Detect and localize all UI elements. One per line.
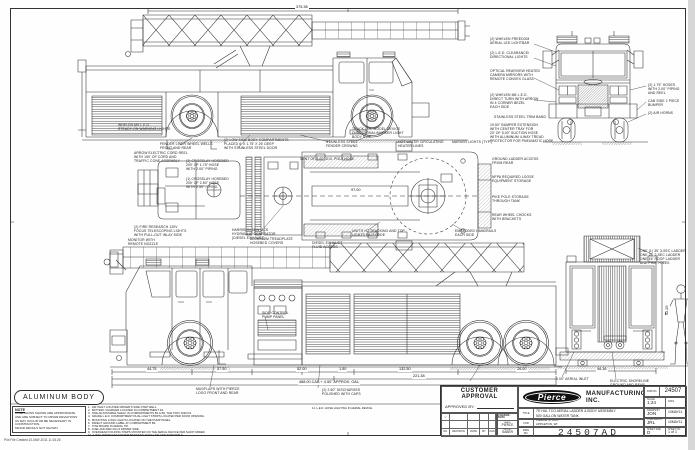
plot-file-stamp: Plot File Created 10-MAY-2011 11:15:26 bbox=[4, 438, 61, 442]
note-text: DIMENSIONS SHOWN ARE APPROXIMATE AND ARE… bbox=[15, 412, 83, 431]
for-row: FOR PIERCE STOCK APPLETON, WI bbox=[518, 419, 644, 427]
title-row: TITLE 75' HAL TCO AERIAL LADDER & BODY A… bbox=[518, 408, 644, 419]
checked-row: CHECKED BYJRL 10MAY11 bbox=[644, 418, 687, 427]
sheet-number: 1 of 1 bbox=[668, 431, 684, 435]
drawing-number: 24507AD bbox=[534, 428, 643, 436]
title-block: CUSTOMER APPROVAL APPROVED BY: DATE: ▽ N… bbox=[440, 385, 686, 436]
view-right-side bbox=[104, 243, 568, 388]
view-rear bbox=[554, 236, 695, 379]
logo-block: Pierce MANUFACTURING INC. bbox=[518, 386, 644, 408]
pierce-logo: Pierce bbox=[523, 390, 581, 404]
dwg-row: DWG NO. 24507AD bbox=[518, 427, 644, 437]
drawing-title-line2: 500 GALLON WATER TANK bbox=[536, 414, 641, 418]
customer-approval-heading: CUSTOMER APPROVAL bbox=[442, 388, 517, 400]
revision-table: ▽ NO. REVISION DATE BY CHK bbox=[441, 413, 497, 437]
title-label: TITLE bbox=[519, 409, 534, 418]
dwg-no-label: DWG NO. bbox=[519, 428, 534, 436]
rev-col-no: NO. bbox=[442, 429, 450, 436]
chassis-model: SABER bbox=[502, 431, 513, 434]
drawing-sheet: WHELEN M9 L.E.D. STEADY-ON WARNING LIGHT… bbox=[0, 0, 695, 450]
scan-edge-shadow bbox=[688, 0, 695, 450]
note-box: NOTE DIMENSIONS SHOWN ARE APPROXIMATE AN… bbox=[12, 406, 86, 433]
rev-col-by: BY bbox=[480, 429, 489, 436]
note-item-11: 11. L.E.D. HOSE LIGHTING IN AERIAL DEVIC… bbox=[312, 406, 373, 410]
chassis-header: CHASSIS DATA bbox=[498, 415, 517, 420]
company-name: MANUFACTURING INC. bbox=[586, 390, 644, 404]
drawn-row: DRAWN BYJON 10MAY11 bbox=[644, 408, 687, 418]
approved-by-line[interactable] bbox=[477, 403, 514, 409]
customer-approval-block: CUSTOMER APPROVAL APPROVED BY: DATE: bbox=[441, 386, 518, 413]
view-left-side-rear bbox=[78, 8, 470, 149]
drawn-by: JON bbox=[647, 412, 663, 417]
revision-symbol: ▽ bbox=[442, 414, 450, 421]
chassis-data-block: CHASSIS DATA MAKEPIERCE MODELSABER bbox=[497, 413, 518, 437]
scale-value: 1:24 bbox=[647, 401, 663, 406]
scale-row: SCALE1:24 DATE bbox=[644, 397, 687, 408]
checked-date: 10MAY11 bbox=[668, 421, 684, 424]
job-no-label: JOB NO. bbox=[645, 387, 660, 396]
sheet-size: D bbox=[647, 431, 663, 436]
rev-col-date: DATE bbox=[468, 429, 480, 436]
truck-drawing-views bbox=[0, 0, 695, 450]
rev-col-revision: REVISION bbox=[450, 429, 468, 436]
notes-list: 1. AIR INLET LOCATED DRIVER'S SIDE STEP … bbox=[88, 406, 205, 437]
drawn-date: 10MAY11 bbox=[668, 411, 684, 414]
date-label: DATE bbox=[668, 401, 684, 403]
approved-by-label: APPROVED BY: bbox=[445, 404, 475, 409]
job-row: JOB NO. 24507 bbox=[644, 386, 687, 397]
checked-by: JRL bbox=[647, 421, 663, 426]
view-plan bbox=[138, 142, 491, 250]
brand-name: Pierce bbox=[538, 392, 567, 402]
job-number: 24507 bbox=[665, 388, 682, 396]
rev-col-chk: CHK bbox=[489, 429, 496, 436]
aluminum-body-label: ALUMINUM BODY bbox=[14, 390, 104, 405]
chassis-make: PIERCE bbox=[502, 424, 514, 427]
for-label: FOR bbox=[519, 420, 534, 426]
view-front bbox=[534, 31, 648, 145]
aluminum-body-text: ALUMINUM BODY bbox=[23, 394, 95, 401]
sheet-row: SHEET SIZED SHEET NO.1 of 1 bbox=[644, 427, 687, 437]
